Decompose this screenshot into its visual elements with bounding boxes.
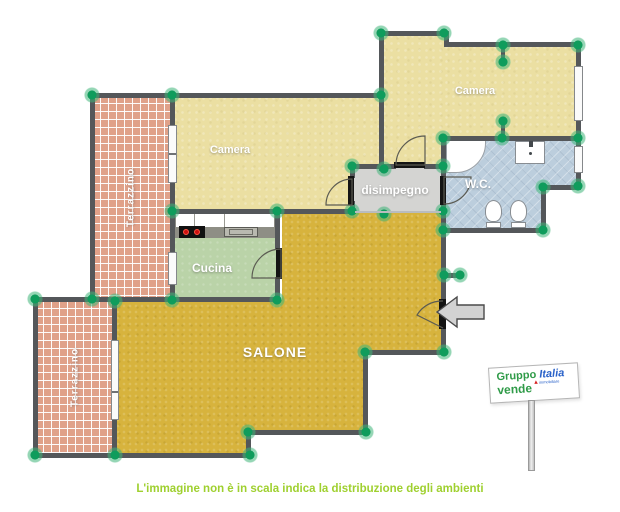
corner-marker-icon — [434, 129, 452, 147]
corner-marker-icon — [106, 446, 124, 464]
corner-marker-icon — [494, 36, 512, 54]
corner-marker-icon — [534, 178, 552, 196]
window-icon — [111, 340, 119, 420]
corner-marker-icon — [372, 24, 390, 42]
faucet-icon — [529, 141, 533, 147]
corner-marker-icon — [343, 157, 361, 175]
wall — [90, 93, 384, 98]
corner-marker-icon — [534, 221, 552, 239]
corner-marker-icon — [26, 446, 44, 464]
window-mullion — [112, 391, 118, 393]
corner-marker-icon — [83, 290, 101, 308]
room-label-terrazzino-1: Terrazzino — [126, 148, 137, 248]
wall — [33, 453, 253, 458]
corner-marker-icon — [569, 36, 587, 54]
corner-marker-icon — [106, 292, 124, 310]
wall — [90, 93, 95, 302]
corner-marker-icon — [569, 177, 587, 195]
wall — [441, 228, 546, 233]
room-camera-2 — [381, 33, 447, 168]
burner-icon — [194, 229, 200, 235]
corner-marker-icon — [163, 291, 181, 309]
room-label-salone: SALONE — [215, 344, 335, 360]
wall — [363, 350, 446, 355]
drain-icon — [529, 152, 532, 155]
bathroom-sink-icon — [515, 141, 545, 164]
room-label-cucina: Cucina — [162, 261, 262, 275]
window-icon — [574, 146, 583, 173]
threshold-line — [355, 211, 441, 213]
corner-marker-icon — [435, 24, 453, 42]
toilet-icon — [485, 200, 502, 222]
corner-marker-icon — [434, 157, 452, 175]
wall — [33, 297, 280, 302]
corner-marker-icon — [435, 343, 453, 361]
corner-marker-icon — [569, 129, 587, 147]
floor-plan: Camera Camera Terrazzino Terrazzino disi… — [0, 0, 620, 512]
corner-marker-icon — [451, 266, 469, 284]
burner-icon — [183, 229, 189, 235]
window-icon — [168, 125, 177, 183]
corner-marker-icon — [356, 343, 374, 361]
agency-sign: Gruppo Italia ▲immobiliare vende — [488, 362, 580, 403]
door-leaf-entrance — [439, 299, 446, 329]
window-icon — [574, 66, 583, 121]
door-leaf-camera2 — [394, 162, 425, 168]
corner-marker-icon — [83, 86, 101, 104]
room-label-wc: W.C. — [438, 177, 518, 191]
corner-marker-icon — [494, 112, 512, 130]
door-leaf-cucina — [276, 248, 282, 279]
corner-marker-icon — [372, 86, 390, 104]
room-label-disimpegno: disimpegno — [345, 183, 445, 197]
room-label-camera-1: Camera — [180, 144, 280, 156]
corner-marker-icon — [163, 86, 181, 104]
corner-marker-icon — [268, 291, 286, 309]
corner-marker-icon — [357, 423, 375, 441]
wall — [441, 136, 581, 141]
kitchen-sink-icon — [224, 227, 258, 237]
room-label-camera-2: Camera — [425, 85, 525, 97]
room-label-terrazzino-2: Terrazzino — [70, 328, 81, 428]
wall — [444, 42, 581, 47]
wall — [246, 430, 368, 435]
wall — [33, 297, 38, 458]
sign-post — [528, 400, 535, 471]
corner-marker-icon — [375, 205, 393, 223]
corner-marker-icon — [26, 290, 44, 308]
corner-marker-icon — [239, 423, 257, 441]
corner-marker-icon — [434, 221, 452, 239]
kitchen-sink-basin — [229, 229, 253, 235]
corner-marker-icon — [493, 129, 511, 147]
corner-marker-icon — [241, 446, 259, 464]
toilet-icon — [510, 200, 527, 222]
corner-marker-icon — [268, 202, 286, 220]
caption-text: L'immagine non è in scala indica la dist… — [0, 483, 620, 495]
wall — [170, 209, 356, 214]
corner-marker-icon — [375, 160, 393, 178]
corner-marker-icon — [494, 53, 512, 71]
window-mullion — [169, 153, 176, 155]
corner-marker-icon — [163, 202, 181, 220]
